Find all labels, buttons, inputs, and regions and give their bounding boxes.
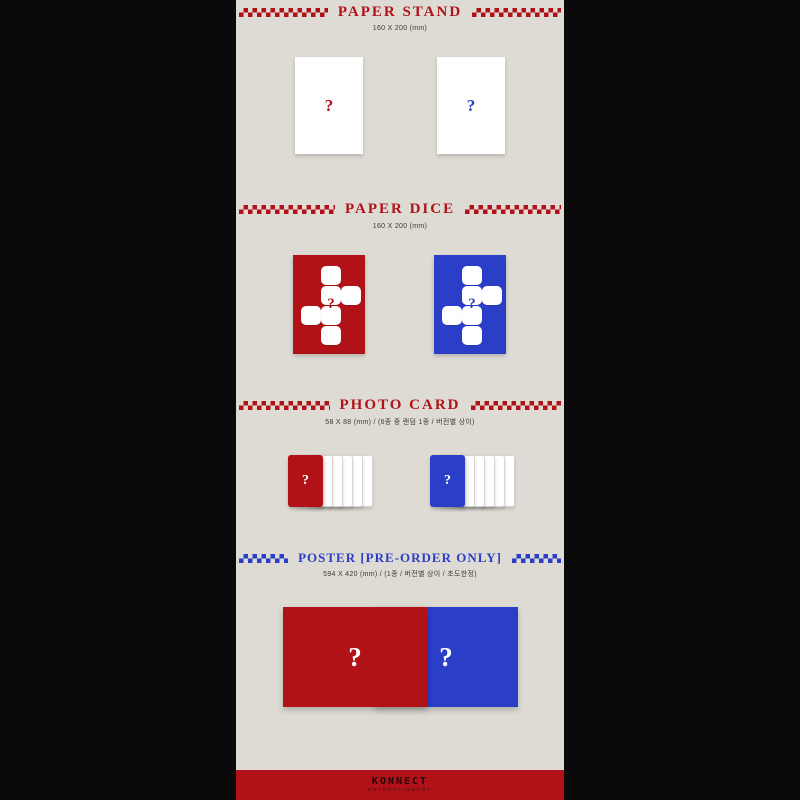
checker-strip-icon	[472, 8, 561, 17]
poster-size: 594 X 420 (mm) / (1종 / 버전별 상이 / 초도한정)	[236, 569, 564, 579]
checker-strip-icon	[471, 401, 562, 410]
question-mark-placeholder: ?	[302, 473, 309, 489]
question-mark-placeholder: ?	[444, 473, 451, 489]
paper-stand-blue-version: ?	[437, 57, 505, 154]
dice-net-square	[482, 286, 502, 305]
checker-strip-icon	[239, 401, 330, 410]
paper-dice-size: 160 X 200 (mm)	[236, 223, 564, 230]
dice-net-square	[321, 326, 341, 345]
photo-card-red-version: ?	[288, 455, 323, 507]
dice-net-square	[462, 326, 482, 345]
paper-stand-red-version: ?	[295, 57, 363, 154]
photo-card-header: PHOTO CARD	[236, 397, 564, 414]
paper-stand-size: 160 X 200 (mm)	[236, 25, 564, 32]
paper-dice-title: PAPER DICE	[345, 201, 455, 218]
question-mark-placeholder: ?	[348, 642, 362, 673]
dice-net-square	[341, 286, 361, 305]
content-panel: PAPER STAND 160 X 200 (mm) ? ? PAPER DIC…	[236, 0, 564, 800]
question-mark-placeholder: ?	[439, 642, 453, 673]
konnect-logo-subtext: ENTERTAINMENT	[368, 788, 432, 793]
photo-card-size: 58 X 88 (mm) / (6종 중 랜덤 1종 / 버전별 상이)	[236, 417, 564, 427]
poster-title: POSTER [PRE-ORDER ONLY]	[298, 550, 502, 566]
checker-strip-icon	[239, 8, 328, 17]
checker-strip-icon	[512, 554, 561, 563]
photo-card-title: PHOTO CARD	[340, 397, 461, 414]
dice-net-square	[442, 306, 462, 325]
photo-card-blue-version: ?	[430, 455, 465, 507]
checker-strip-icon	[465, 205, 561, 214]
photo-card-stack-blue: ?	[430, 455, 570, 507]
dice-net-square	[462, 266, 482, 285]
dice-net-square	[321, 266, 341, 285]
question-mark-placeholder: ?	[467, 96, 476, 116]
question-mark-placeholder: ?	[462, 292, 482, 316]
paper-dice-header: PAPER DICE	[236, 201, 564, 218]
question-mark-placeholder: ?	[325, 96, 334, 116]
question-mark-placeholder: ?	[321, 292, 341, 316]
footer-bar: KONNECT ENTERTAINMENT	[236, 770, 564, 800]
poster-red-version: ?	[283, 607, 427, 707]
checker-strip-icon	[239, 554, 288, 563]
dice-net-square	[301, 306, 321, 325]
paper-stand-title: PAPER STAND	[338, 4, 462, 21]
paper-stand-header: PAPER STAND	[236, 4, 564, 21]
album-components-image: PAPER STAND 160 X 200 (mm) ? ? PAPER DIC…	[0, 0, 800, 800]
photo-card-stack-red: ?	[288, 455, 428, 507]
paper-dice-red-version: ?	[293, 255, 365, 354]
paper-dice-blue-version: ?	[434, 255, 506, 354]
checker-strip-icon	[239, 205, 335, 214]
poster-header: POSTER [PRE-ORDER ONLY]	[236, 550, 564, 566]
konnect-logo: KONNECT	[372, 777, 428, 787]
